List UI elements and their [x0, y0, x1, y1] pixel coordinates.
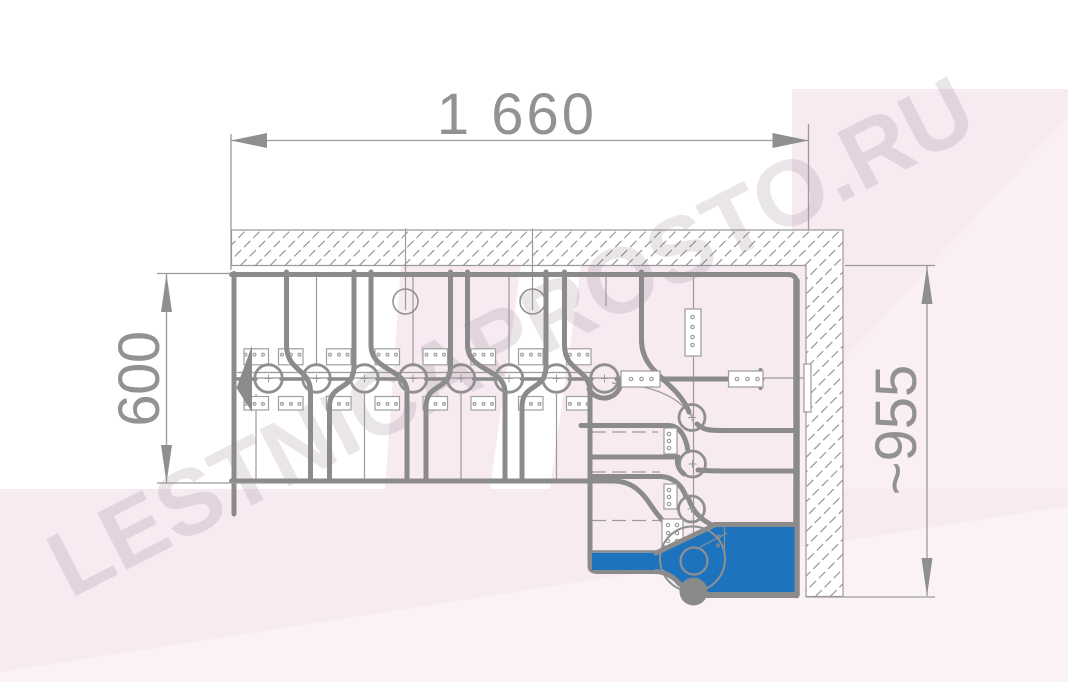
- svg-text:1 660: 1 660: [437, 82, 597, 147]
- svg-text:600: 600: [107, 331, 172, 426]
- svg-text:~955: ~955: [864, 365, 929, 496]
